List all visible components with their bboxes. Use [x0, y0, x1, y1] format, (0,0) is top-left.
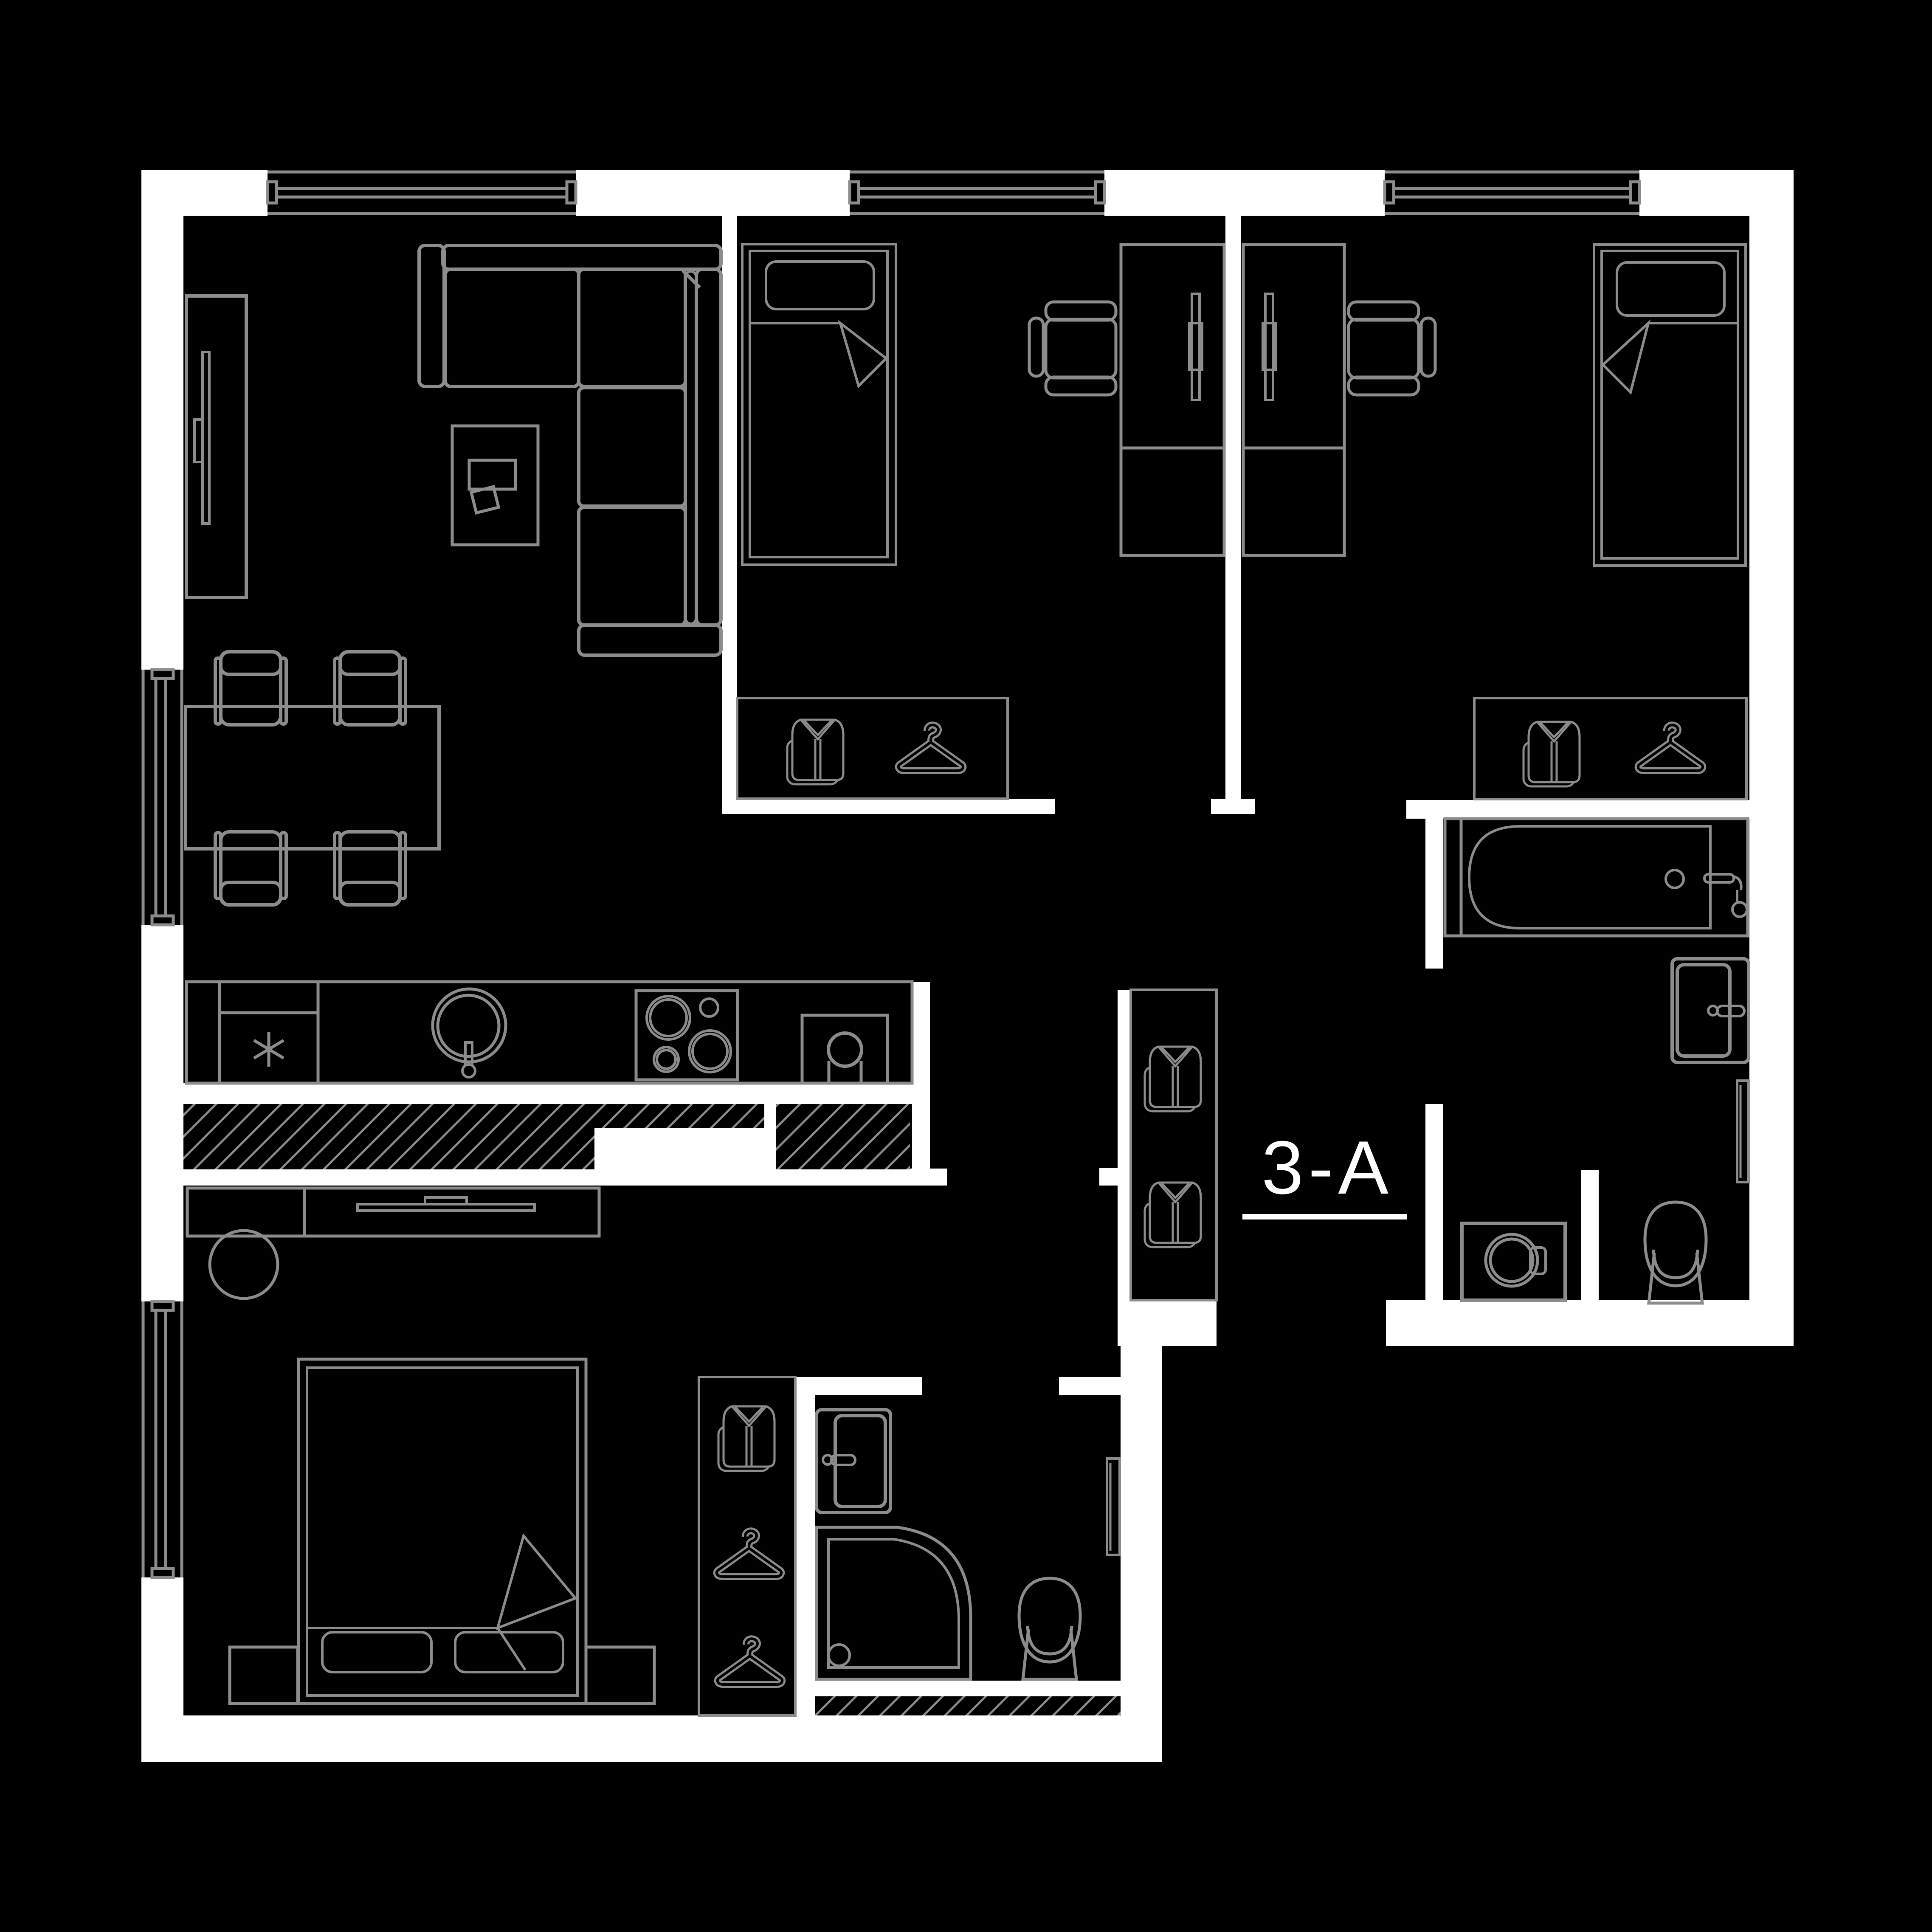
svg-text:3-А: 3-А [1262, 1125, 1393, 1210]
